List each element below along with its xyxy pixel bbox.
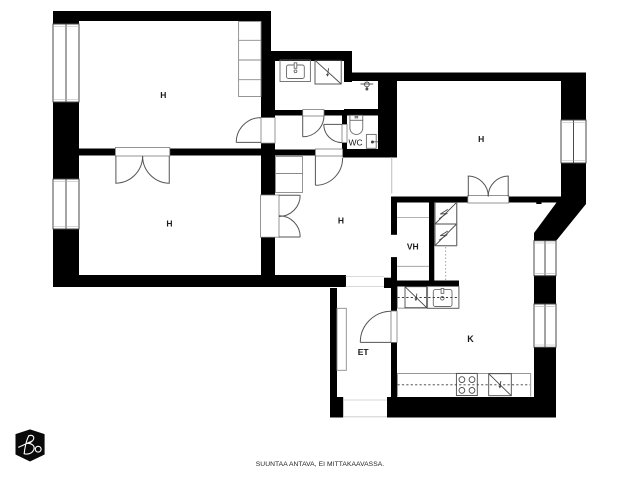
svg-text:H: H <box>166 219 172 229</box>
svg-text:ET: ET <box>358 347 370 357</box>
svg-text:H: H <box>478 134 484 144</box>
svg-text:H: H <box>338 216 344 226</box>
svg-text:VH: VH <box>407 242 419 252</box>
svg-text:H: H <box>160 90 166 100</box>
svg-text:K: K <box>467 334 474 344</box>
svg-text:WC: WC <box>349 137 363 147</box>
svg-text:SUUNTAA ANTAVA, EI MITTAKAAVAS: SUUNTAA ANTAVA, EI MITTAKAAVASSA. <box>256 461 385 468</box>
